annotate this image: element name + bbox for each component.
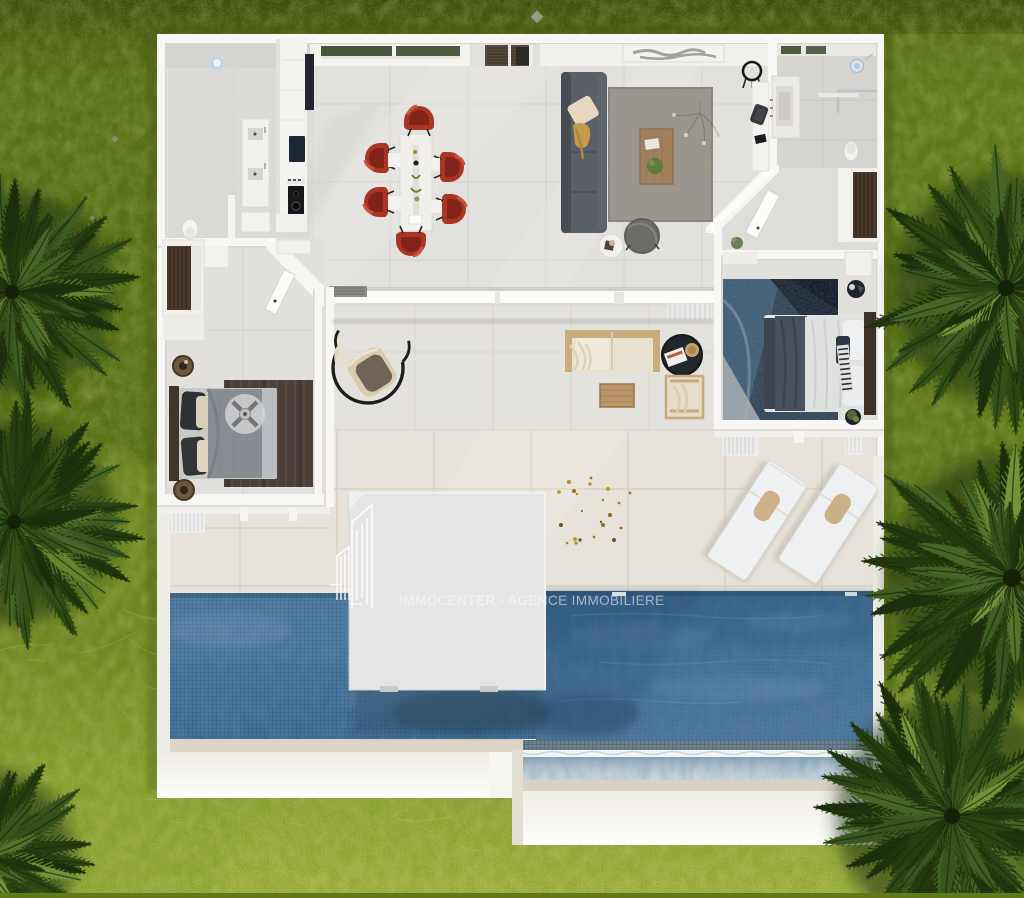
svg-text:IMMOCENTER - AGENCE IMMOBILIER: IMMOCENTER - AGENCE IMMOBILIERE [399,593,664,608]
